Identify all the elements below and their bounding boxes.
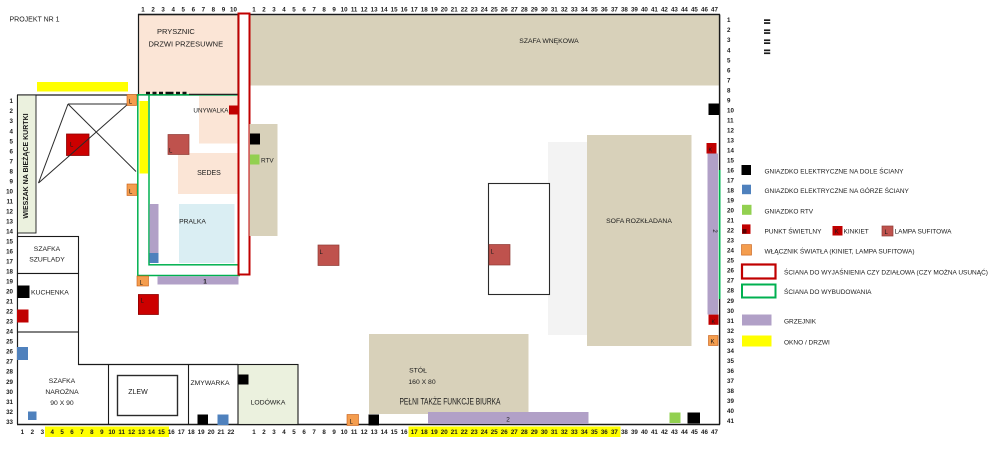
svg-text:37: 37 (611, 7, 618, 14)
svg-text:2: 2 (262, 429, 266, 436)
svg-text:14: 14 (381, 429, 388, 436)
svg-text:11: 11 (6, 198, 13, 205)
svg-text:6: 6 (10, 148, 14, 155)
svg-text:29: 29 (531, 429, 538, 436)
svg-text:4: 4 (282, 7, 286, 14)
svg-text:SEDES: SEDES (197, 170, 221, 177)
svg-text:31: 31 (727, 318, 734, 325)
svg-text:26: 26 (6, 349, 13, 356)
svg-text:40: 40 (641, 429, 648, 436)
svg-text:PUNKT ŚWIETLNY: PUNKT ŚWIETLNY (765, 227, 823, 236)
svg-text:34: 34 (581, 429, 588, 436)
svg-text:UNYWALKA: UNYWALKA (193, 108, 229, 115)
svg-text:23: 23 (6, 319, 13, 326)
svg-text:LODÓWKA: LODÓWKA (251, 398, 286, 407)
svg-text:24: 24 (6, 329, 13, 336)
svg-text:18: 18 (421, 7, 428, 14)
svg-text:22: 22 (6, 309, 13, 316)
svg-text:16: 16 (401, 429, 408, 436)
svg-text:32: 32 (727, 328, 734, 335)
svg-text:20: 20 (441, 7, 448, 14)
svg-text:9: 9 (100, 429, 104, 436)
svg-text:9: 9 (332, 7, 336, 14)
svg-text:27: 27 (727, 278, 734, 285)
svg-text:20: 20 (441, 429, 448, 436)
svg-text:19: 19 (727, 198, 734, 205)
svg-text:1: 1 (727, 17, 731, 24)
svg-text:17: 17 (727, 178, 734, 185)
svg-text:7: 7 (80, 429, 84, 436)
svg-text:38: 38 (621, 429, 628, 436)
svg-text:160 X 80: 160 X 80 (408, 379, 435, 386)
svg-text:33: 33 (727, 338, 734, 345)
svg-text:31: 31 (551, 429, 558, 436)
svg-text:16: 16 (401, 7, 408, 14)
svg-text:29: 29 (531, 7, 538, 14)
svg-text:K: K (709, 148, 713, 154)
svg-text:10: 10 (727, 107, 734, 114)
svg-text:13: 13 (371, 429, 378, 436)
svg-text:8: 8 (727, 87, 731, 94)
svg-text:18: 18 (727, 188, 734, 195)
svg-text:36: 36 (727, 368, 734, 375)
svg-text:33: 33 (571, 429, 578, 436)
svg-text:26: 26 (501, 7, 508, 14)
svg-text:5: 5 (292, 7, 296, 14)
svg-text:4: 4 (10, 128, 14, 135)
svg-text:24: 24 (481, 7, 488, 14)
svg-text:PRALKA: PRALKA (179, 219, 206, 226)
svg-text:SOFA ROZKŁADANA: SOFA ROZKŁADANA (606, 218, 672, 225)
svg-text:22: 22 (461, 429, 468, 436)
svg-text:23: 23 (471, 429, 478, 436)
svg-text:KINKIET: KINKIET (844, 229, 869, 236)
svg-text:41: 41 (727, 418, 734, 425)
svg-text:29: 29 (727, 298, 734, 305)
svg-text:ŚCIANA DO WYJAŚNIENIA CZY DZIA: ŚCIANA DO WYJAŚNIENIA CZY DZIAŁOWA (CZY … (784, 267, 988, 276)
svg-text:7: 7 (727, 77, 731, 84)
svg-text:34: 34 (727, 348, 734, 355)
svg-text:34: 34 (581, 7, 588, 14)
svg-text:36: 36 (601, 7, 608, 14)
svg-text:43: 43 (671, 7, 678, 14)
svg-text:28: 28 (727, 288, 734, 295)
svg-text:PEŁNI TAKŻE FUNKCJE BIURKA: PEŁNI TAKŻE FUNKCJE BIURKA (400, 397, 501, 407)
svg-text:6: 6 (302, 429, 306, 436)
svg-text:17: 17 (6, 259, 13, 266)
svg-text:K: K (712, 320, 716, 326)
svg-text:5: 5 (292, 429, 296, 436)
svg-text:PROJEKT NR 1: PROJEKT NR 1 (10, 17, 60, 24)
svg-text:16: 16 (6, 249, 13, 256)
svg-text:SZAFA WNĘKOWA: SZAFA WNĘKOWA (519, 38, 579, 45)
svg-text:90 X 90: 90 X 90 (50, 400, 74, 407)
svg-text:ŚCIANA DO WYBUDOWANIA: ŚCIANA DO WYBUDOWANIA (784, 287, 872, 296)
svg-text:2: 2 (727, 27, 731, 34)
svg-text:19: 19 (6, 279, 13, 286)
svg-text:39: 39 (631, 429, 638, 436)
svg-text:25: 25 (727, 258, 734, 265)
svg-text:35: 35 (591, 7, 598, 14)
svg-text:2: 2 (506, 417, 510, 424)
svg-text:4: 4 (171, 7, 175, 14)
svg-text:OKNO / DRZWI: OKNO / DRZWI (784, 339, 830, 346)
svg-text:20: 20 (727, 208, 734, 215)
svg-text:6: 6 (70, 429, 74, 436)
svg-text:26: 26 (501, 429, 508, 436)
svg-text:2: 2 (31, 429, 35, 436)
svg-text:15: 15 (158, 429, 165, 436)
svg-text:14: 14 (381, 7, 388, 14)
svg-text:40: 40 (727, 408, 734, 415)
svg-text:3: 3 (272, 429, 276, 436)
svg-text:40: 40 (641, 7, 648, 14)
svg-text:30: 30 (727, 308, 734, 315)
svg-text:18: 18 (188, 429, 195, 436)
svg-text:12: 12 (727, 127, 734, 134)
svg-text:12: 12 (128, 429, 135, 436)
svg-text:4: 4 (50, 429, 54, 436)
svg-text:1: 1 (252, 429, 256, 436)
svg-text:6: 6 (192, 7, 196, 14)
svg-text:GNIAZDKO ELEKTRYCZNE NA GÓRZE: GNIAZDKO ELEKTRYCZNE NA GÓRZE ŚCIANY (765, 186, 910, 195)
svg-text:27: 27 (511, 429, 518, 436)
svg-text:8: 8 (212, 7, 216, 14)
svg-text:44: 44 (681, 7, 688, 14)
svg-text:7: 7 (10, 158, 14, 165)
svg-text:12: 12 (361, 429, 368, 436)
svg-text:46: 46 (701, 429, 708, 436)
svg-text:11: 11 (351, 7, 358, 14)
svg-text:SZUFLADY: SZUFLADY (29, 257, 65, 264)
svg-text:WIESZAK NA BIEŻĄCE KURTKI: WIESZAK NA BIEŻĄCE KURTKI (22, 113, 30, 218)
svg-text:23: 23 (471, 7, 478, 14)
svg-text:19: 19 (431, 429, 438, 436)
svg-text:2: 2 (10, 108, 14, 115)
svg-text:12: 12 (6, 208, 13, 215)
svg-text:9: 9 (332, 429, 336, 436)
svg-text:1: 1 (10, 98, 14, 105)
svg-text:30: 30 (6, 389, 13, 396)
svg-text:28: 28 (6, 369, 13, 376)
svg-text:39: 39 (727, 398, 734, 405)
svg-text:24: 24 (727, 248, 734, 255)
svg-text:15: 15 (727, 158, 734, 165)
svg-text:28: 28 (521, 429, 528, 436)
svg-text:9: 9 (10, 178, 14, 185)
svg-text:33: 33 (6, 419, 13, 426)
svg-text:13: 13 (6, 218, 13, 225)
svg-text:18: 18 (6, 269, 13, 276)
svg-text:45: 45 (691, 7, 698, 14)
svg-text:37: 37 (611, 429, 618, 436)
svg-text:27: 27 (511, 7, 518, 14)
svg-text:STÓŁ: STÓŁ (409, 366, 427, 375)
svg-text:36: 36 (601, 429, 608, 436)
svg-text:4: 4 (727, 47, 731, 54)
svg-text:1: 1 (252, 7, 256, 14)
svg-text:5: 5 (181, 7, 185, 14)
svg-text:19: 19 (431, 7, 438, 14)
svg-text:20: 20 (6, 289, 13, 296)
svg-text:17: 17 (411, 429, 418, 436)
svg-text:37: 37 (727, 378, 734, 385)
svg-text:18: 18 (421, 429, 428, 436)
svg-text:32: 32 (561, 429, 568, 436)
svg-text:30: 30 (541, 429, 548, 436)
svg-text:K: K (711, 340, 715, 346)
svg-text:11: 11 (351, 429, 358, 436)
svg-text:9: 9 (727, 97, 731, 104)
svg-text:ZLEW: ZLEW (128, 389, 148, 396)
svg-text:35: 35 (591, 429, 598, 436)
svg-text:19: 19 (198, 429, 205, 436)
svg-text:17: 17 (411, 7, 418, 14)
svg-text:GNIAZDKO ELEKTRYCZNE NA DOLE Ś: GNIAZDKO ELEKTRYCZNE NA DOLE ŚCIANY (765, 167, 905, 176)
svg-text:10: 10 (6, 188, 13, 195)
svg-text:35: 35 (727, 358, 734, 365)
svg-text:9: 9 (222, 7, 226, 14)
svg-text:14: 14 (6, 229, 13, 236)
svg-text:PRYSZNIC: PRYSZNIC (157, 27, 195, 36)
svg-text:GNIAZDKO RTV: GNIAZDKO RTV (765, 208, 814, 215)
svg-text:42: 42 (661, 429, 668, 436)
svg-text:8: 8 (322, 429, 326, 436)
svg-text:20: 20 (208, 429, 215, 436)
svg-text:26: 26 (727, 268, 734, 275)
svg-text:5: 5 (10, 138, 14, 145)
svg-text:1: 1 (21, 429, 25, 436)
svg-text:1: 1 (141, 7, 145, 14)
svg-text:10: 10 (108, 429, 115, 436)
svg-text:GRZEJNIK: GRZEJNIK (784, 318, 817, 325)
svg-text:16: 16 (727, 168, 734, 175)
svg-text:31: 31 (6, 399, 13, 406)
svg-text:46: 46 (701, 7, 708, 14)
svg-text:17: 17 (178, 429, 185, 436)
svg-text:DRZWI PRZESUWNE: DRZWI PRZESUWNE (149, 40, 224, 49)
svg-text:21: 21 (451, 429, 458, 436)
svg-text:23: 23 (727, 238, 734, 245)
svg-text:21: 21 (451, 7, 458, 14)
svg-text:39: 39 (631, 7, 638, 14)
svg-text:10: 10 (341, 429, 348, 436)
svg-text:8: 8 (10, 168, 14, 175)
svg-text:8: 8 (322, 7, 326, 14)
svg-text:25: 25 (491, 7, 498, 14)
svg-text:13: 13 (138, 429, 145, 436)
svg-text:WŁĄCZNIK ŚWIATŁA (KINIET, LAMP: WŁĄCZNIK ŚWIATŁA (KINIET, LAMPA SUFITOWA… (765, 247, 915, 256)
svg-text:4: 4 (282, 429, 286, 436)
svg-text:11: 11 (727, 117, 734, 124)
svg-text:RTV: RTV (261, 158, 274, 165)
svg-text:5: 5 (727, 57, 731, 64)
svg-text:1: 1 (203, 278, 207, 285)
svg-text:6: 6 (302, 7, 306, 14)
svg-text:2: 2 (262, 7, 266, 14)
svg-text:7: 7 (202, 7, 206, 14)
svg-text:21: 21 (727, 218, 734, 225)
svg-text:3: 3 (272, 7, 276, 14)
svg-text:SZAFKA: SZAFKA (49, 378, 76, 385)
svg-text:3: 3 (10, 118, 14, 125)
svg-text:15: 15 (391, 429, 398, 436)
svg-text:21: 21 (218, 429, 225, 436)
svg-text:3: 3 (727, 37, 731, 44)
svg-text:14: 14 (727, 148, 734, 155)
svg-text:5: 5 (60, 429, 64, 436)
svg-text:ZMYWARKA: ZMYWARKA (190, 380, 229, 387)
svg-text:38: 38 (621, 7, 628, 14)
svg-text:21: 21 (6, 299, 13, 306)
svg-text:27: 27 (6, 359, 13, 366)
svg-text:6: 6 (727, 67, 731, 74)
svg-text:13: 13 (371, 7, 378, 14)
svg-text:3: 3 (41, 429, 45, 436)
svg-text:38: 38 (727, 388, 734, 395)
svg-text:7: 7 (312, 429, 316, 436)
svg-text:NAROŻNA: NAROŻNA (45, 387, 79, 396)
svg-text:41: 41 (651, 429, 658, 436)
svg-text:47: 47 (711, 429, 718, 436)
svg-text:30: 30 (541, 7, 548, 14)
svg-text:7: 7 (312, 7, 316, 14)
svg-text:45: 45 (691, 429, 698, 436)
svg-text:16: 16 (168, 429, 175, 436)
svg-text:33: 33 (571, 7, 578, 14)
svg-text:41: 41 (651, 7, 658, 14)
svg-text:31: 31 (551, 7, 558, 14)
svg-text:42: 42 (661, 7, 668, 14)
svg-text:8: 8 (90, 429, 94, 436)
svg-text:10: 10 (341, 7, 348, 14)
svg-text:22: 22 (227, 429, 234, 436)
svg-text:43: 43 (671, 429, 678, 436)
svg-text:LAMPA SUFITOWA: LAMPA SUFITOWA (895, 229, 953, 236)
svg-text:24: 24 (481, 429, 488, 436)
svg-text:15: 15 (6, 239, 13, 246)
svg-text:3: 3 (161, 7, 165, 14)
svg-text:44: 44 (681, 429, 688, 436)
svg-text:47: 47 (711, 7, 718, 14)
svg-text:32: 32 (561, 7, 568, 14)
svg-text:29: 29 (6, 379, 13, 386)
svg-text:KUCHENKA: KUCHENKA (31, 290, 69, 297)
svg-text:2: 2 (151, 7, 155, 14)
svg-text:13: 13 (727, 137, 734, 144)
svg-text:15: 15 (391, 7, 398, 14)
svg-text:SZAFKA: SZAFKA (34, 246, 61, 253)
svg-text:25: 25 (491, 429, 498, 436)
svg-text:32: 32 (6, 409, 13, 416)
svg-text:K: K (835, 230, 839, 236)
svg-text:28: 28 (521, 7, 528, 14)
svg-text:22: 22 (461, 7, 468, 14)
svg-text:11: 11 (118, 429, 125, 436)
svg-text:14: 14 (148, 429, 155, 436)
svg-text:22: 22 (727, 228, 734, 235)
svg-text:12: 12 (361, 7, 368, 14)
svg-text:25: 25 (6, 339, 13, 346)
svg-text:10: 10 (230, 7, 237, 14)
